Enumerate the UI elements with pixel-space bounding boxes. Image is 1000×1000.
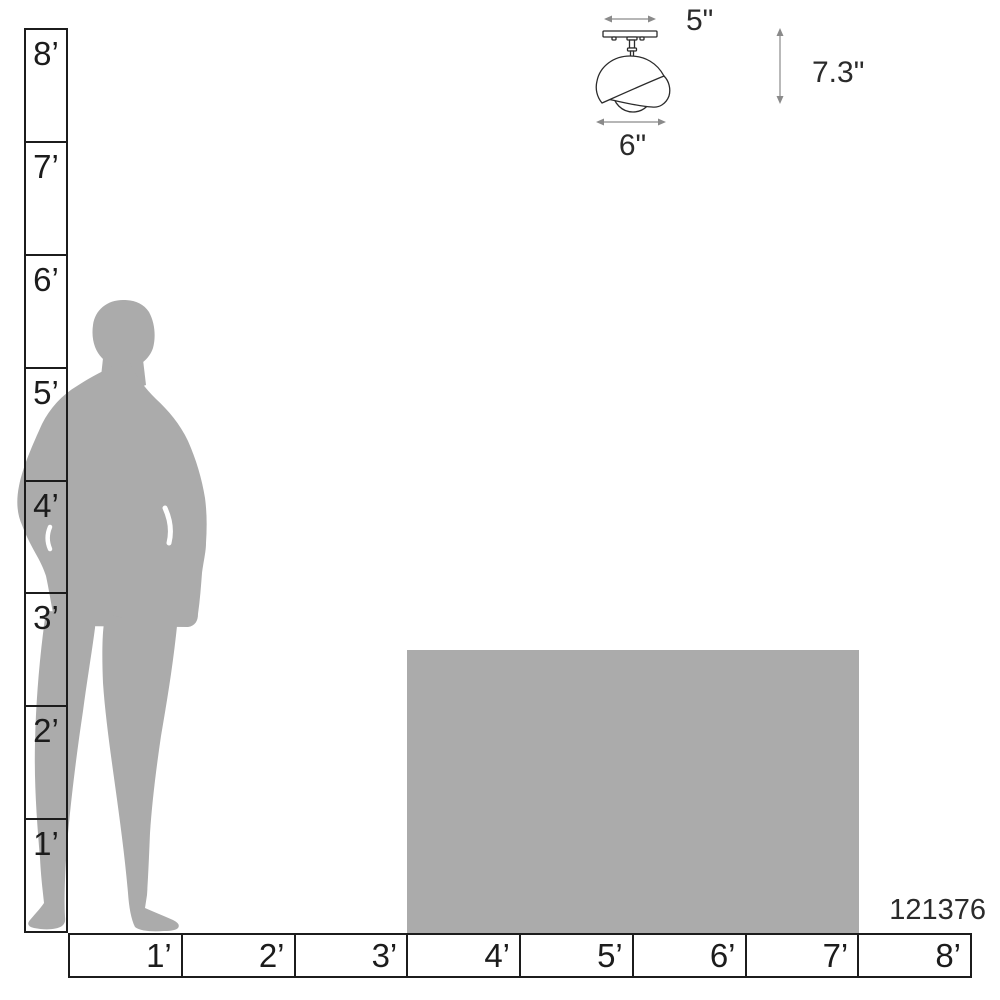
horizontal-ruler: 1’ 2’ 3’ 4’ 5’ 6’ 7’ 8’ <box>68 933 972 978</box>
fixture-canopy <box>603 31 657 37</box>
height-arrow-icon <box>777 28 784 104</box>
shade-width-arrow-icon <box>596 119 666 126</box>
shade-width-label: 6" <box>595 131 670 161</box>
horizontal-ruler-cell: 6’ <box>634 935 747 976</box>
person-right-leg <box>102 615 178 931</box>
vertical-ruler-cell: 8’ <box>26 30 66 143</box>
vertical-ruler-cell: 6’ <box>26 256 66 369</box>
vertical-ruler: 8’ 7’ 6’ 5’ 4’ 3’ 2’ 1’ <box>24 28 68 933</box>
horizontal-ruler-cell: 5’ <box>521 935 634 976</box>
table-silhouette <box>407 650 859 935</box>
horizontal-ruler-cell: 3’ <box>296 935 409 976</box>
fixture-stem <box>630 40 635 48</box>
horizontal-ruler-cell: 4’ <box>408 935 521 976</box>
vertical-ruler-cell: 7’ <box>26 143 66 256</box>
vertical-ruler-cell: 5’ <box>26 369 66 482</box>
horizontal-ruler-cell: 2’ <box>183 935 296 976</box>
horizontal-ruler-cell: 7’ <box>747 935 860 976</box>
vertical-ruler-cell: 2’ <box>26 707 66 820</box>
fixture-screw-right <box>640 37 644 40</box>
canopy-width-label: 5" <box>686 6 713 36</box>
canopy-width-arrow-icon <box>604 16 656 23</box>
vertical-ruler-cell: 1’ <box>26 820 66 931</box>
vertical-ruler-cell: 3’ <box>26 594 66 707</box>
horizontal-ruler-cell: 8’ <box>859 935 970 976</box>
horizontal-ruler-cell: 1’ <box>70 935 183 976</box>
fixture-height-label: 7.3" <box>812 58 864 88</box>
fixture-screw-left <box>612 37 616 40</box>
product-code: 121376 <box>889 896 986 925</box>
vertical-ruler-cell: 4’ <box>26 482 66 595</box>
scale-diagram: 8’ 7’ 6’ 5’ 4’ 3’ 2’ 1’ 1’ 2’ 3’ 4’ 5’ 6… <box>0 0 1000 1000</box>
